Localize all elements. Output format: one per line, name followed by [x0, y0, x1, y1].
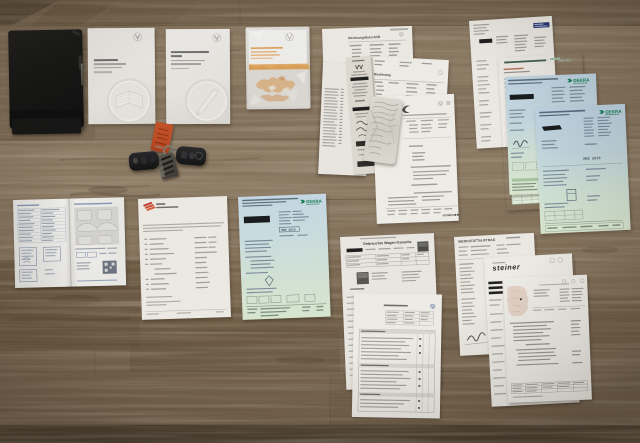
svg-text:VV: VV [355, 65, 363, 72]
svg-text:DEKRA: DEKRA [306, 199, 323, 205]
svg-text:DEKRA: DEKRA [605, 109, 622, 115]
svg-text:WERKSTATTAUFTRAG: WERKSTATTAUFTRAG [458, 238, 496, 244]
svg-text:DEKRA: DEKRA [573, 78, 590, 84]
svg-text:erhalten: erhalten [443, 213, 456, 217]
svg-text:MRZ 2015: MRZ 2015 [281, 228, 296, 232]
svg-text:DEKRA: DEKRA [558, 58, 571, 63]
svg-text:Gebrauchte Wagen-Garantie: Gebrauchte Wagen-Garantie [363, 240, 412, 246]
svg-text:steiner: steiner [492, 262, 521, 272]
svg-text:MRZ 2016: MRZ 2016 [583, 157, 600, 162]
